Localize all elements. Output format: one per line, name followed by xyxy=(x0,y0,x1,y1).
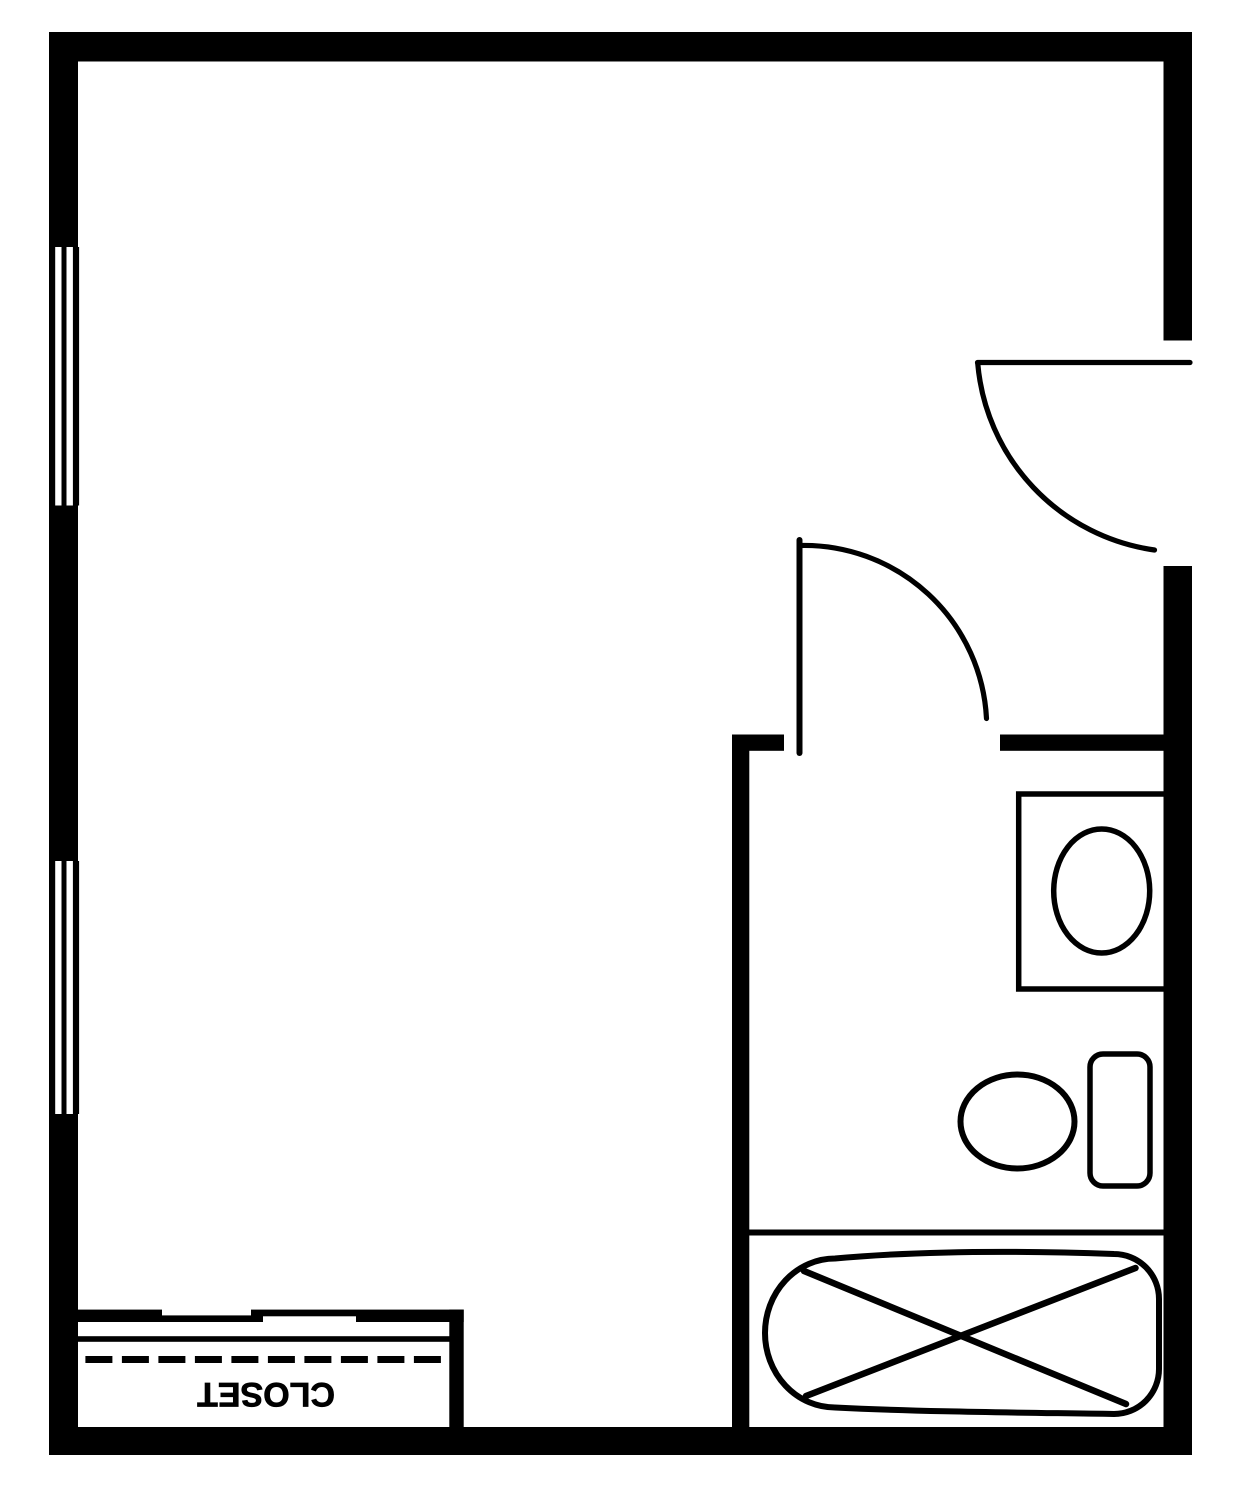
svg-text:CLOSET: CLOSET xyxy=(197,1375,335,1413)
